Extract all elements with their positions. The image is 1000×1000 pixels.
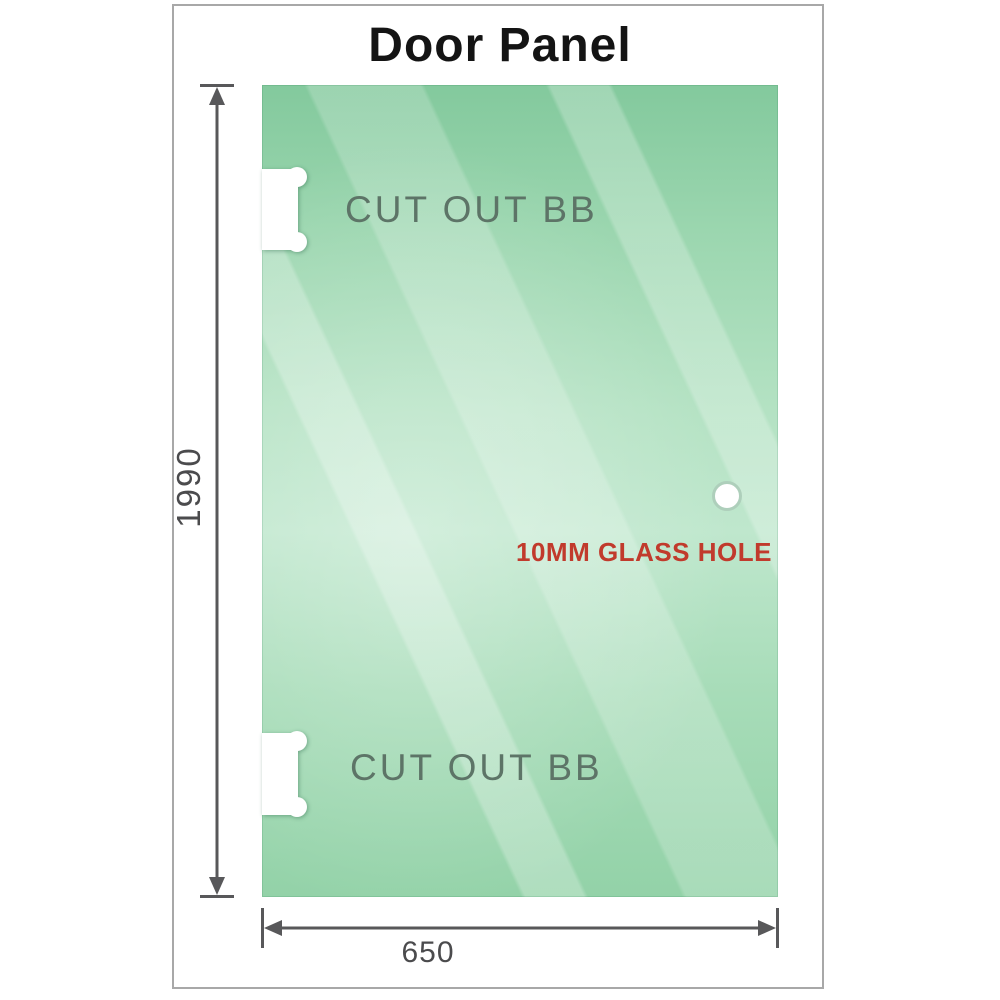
width-dimension-value: 650 [401,936,454,970]
diagram-title: Door Panel [172,18,828,73]
cutout-drill-bump [287,232,307,252]
door-panel-diagram: Door Panel CUT OUT BB CUT OUT BB 10MM GL… [0,0,1000,1000]
glass-hole [712,481,742,511]
height-dimension-value: 1990 [170,446,208,527]
cutout-drill-bump [287,797,307,817]
cutout-drill-bump [287,167,307,187]
cutout-drill-bump [287,731,307,751]
cutout-label-top: CUT OUT BB [345,189,598,231]
cutout-label-bottom: CUT OUT BB [350,747,603,789]
glass-hole-label: 10MM GLASS HOLE [516,537,772,568]
